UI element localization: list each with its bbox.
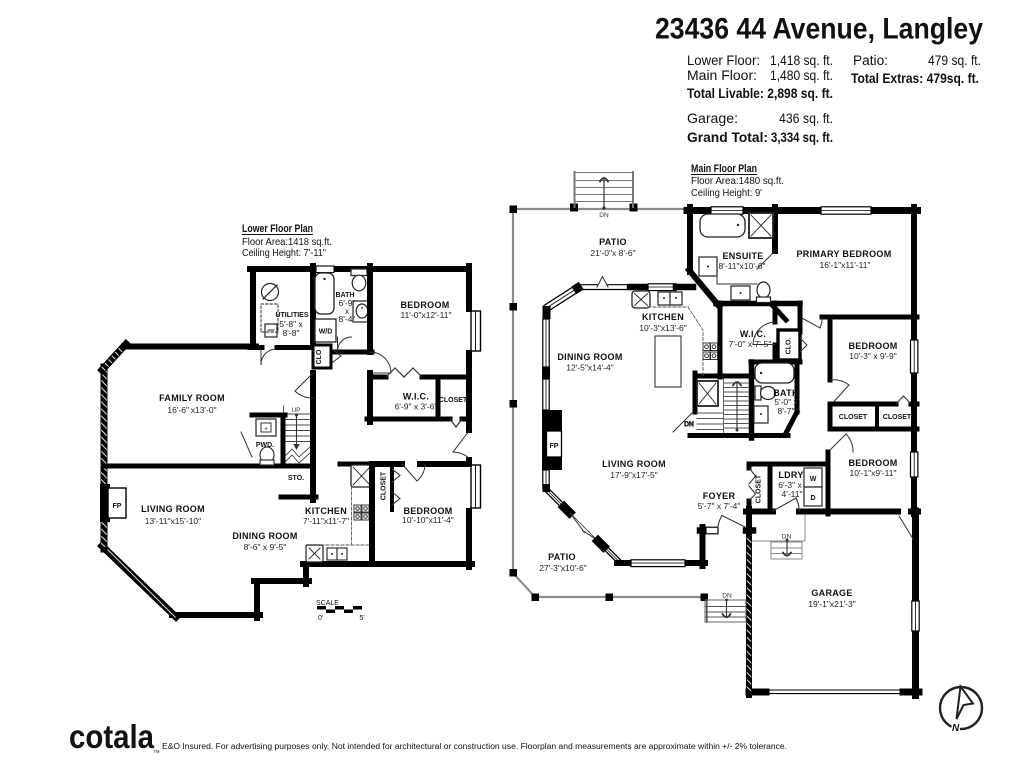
svg-text:Ceiling Height: 9': Ceiling Height: 9': [691, 188, 762, 199]
svg-text:BEDROOM: BEDROOM: [848, 458, 897, 468]
svg-text:13'-11"x15'-10": 13'-11"x15'-10": [145, 516, 201, 526]
svg-text:27'-3"x10'-6": 27'-3"x10'-6": [539, 563, 587, 573]
svg-text:5': 5': [359, 615, 364, 622]
svg-text:BEDROOM: BEDROOM: [400, 300, 449, 310]
svg-text:TM: TM: [154, 749, 161, 754]
svg-text:DN: DN: [599, 212, 609, 219]
svg-text:16'-6" x13'-0": 16'-6" x13'-0": [167, 405, 216, 415]
svg-text:Patio:: Patio:: [853, 52, 888, 68]
svg-text:Ceiling Height: 7'-11": Ceiling Height: 7'-11": [242, 248, 326, 259]
svg-text:5'-7" x 7'-4": 5'-7" x 7'-4": [698, 501, 741, 511]
svg-text:LDRY: LDRY: [778, 470, 803, 480]
svg-text:DN: DN: [722, 593, 732, 600]
svg-text:8'-8": 8'-8": [283, 328, 300, 338]
svg-text:17'-9"x17'-5": 17'-9"x17'-5": [610, 470, 658, 480]
svg-text:E&O Insured. For advertising p: E&O Insured. For advertising purposes on…: [162, 742, 787, 751]
svg-text:DINING ROOM: DINING ROOM: [232, 531, 297, 541]
svg-text:KITCHEN: KITCHEN: [642, 312, 684, 322]
svg-text:UP: UP: [291, 407, 300, 414]
svg-text:Lower Floor Plan: Lower Floor Plan: [242, 223, 313, 235]
svg-text:LIVING ROOM: LIVING ROOM: [602, 459, 666, 469]
svg-text:BEDROOM: BEDROOM: [848, 341, 897, 351]
svg-text:W.I.C.: W.I.C.: [740, 329, 766, 339]
svg-text:16'-1"x11'-11": 16'-1"x11'-11": [819, 260, 870, 270]
svg-text:Lower Floor:: Lower Floor:: [687, 52, 760, 68]
svg-text:3,334 sq. ft.: 3,334 sq. ft.: [771, 129, 833, 145]
svg-text:D: D: [810, 495, 815, 502]
svg-text:8'-11"x10'-6": 8'-11"x10'-6": [719, 261, 766, 271]
svg-text:12'-5"x14'-4": 12'-5"x14'-4": [566, 363, 614, 373]
svg-text:19'-1"x21'-3": 19'-1"x21'-3": [808, 599, 856, 609]
svg-text:CLOSET: CLOSET: [381, 471, 388, 500]
svg-text:cotala: cotala: [69, 718, 155, 755]
svg-text:479 sq. ft.: 479 sq. ft.: [928, 52, 981, 68]
svg-text:8'-6" x 9'-5": 8'-6" x 9'-5": [244, 542, 287, 552]
svg-text:Garage:: Garage:: [687, 110, 738, 126]
svg-text:CLOSET: CLOSET: [883, 414, 912, 421]
svg-text:PATIO: PATIO: [548, 552, 576, 562]
svg-text:10'-3" x 9'-9": 10'-3" x 9'-9": [849, 351, 897, 361]
svg-text:6'-9" x 3'-6": 6'-9" x 3'-6": [395, 402, 438, 412]
svg-text:Floor Area:1418 sq.ft.: Floor Area:1418 sq.ft.: [242, 237, 332, 248]
svg-text:7'-0" x 7'-5": 7'-0" x 7'-5": [729, 339, 772, 349]
svg-text:LIVING ROOM: LIVING ROOM: [141, 504, 205, 514]
svg-text:GARAGE: GARAGE: [811, 588, 852, 598]
svg-text:Main Floor:: Main Floor:: [687, 67, 757, 83]
svg-text:+: +: [264, 426, 268, 433]
svg-text:FAMILY ROOM: FAMILY ROOM: [159, 393, 225, 403]
svg-text:CLOSET: CLOSET: [439, 397, 468, 404]
svg-text:SCALE: SCALE: [316, 600, 339, 607]
svg-text:CLOSET: CLOSET: [839, 414, 868, 421]
svg-text:Total Livable: 2,898 sq. ft.: Total Livable: 2,898 sq. ft.: [687, 85, 833, 101]
svg-text:4'-11": 4'-11": [781, 489, 802, 499]
svg-text:ENSUITE: ENSUITE: [722, 251, 763, 261]
svg-text:1,418 sq. ft.: 1,418 sq. ft.: [770, 52, 833, 68]
svg-text:Floor Area:1480 sq.ft.: Floor Area:1480 sq.ft.: [691, 176, 784, 187]
svg-text:PRIMARY BEDROOM: PRIMARY BEDROOM: [796, 249, 891, 259]
svg-text:W.I.C.: W.I.C.: [403, 392, 429, 402]
svg-text:UTILITIES: UTILITIES: [275, 312, 308, 319]
svg-text:Main Floor Plan: Main Floor Plan: [691, 163, 757, 175]
svg-text:N: N: [952, 723, 960, 734]
svg-text:W/D: W/D: [319, 329, 333, 336]
svg-text:CLO: CLO: [316, 349, 323, 364]
svg-text:0': 0': [318, 615, 323, 622]
svg-text:CLOSET: CLOSET: [756, 474, 763, 503]
svg-text:KITCHEN: KITCHEN: [305, 506, 347, 516]
svg-text:436 sq. ft.: 436 sq. ft.: [779, 110, 833, 126]
svg-text:8'-4": 8'-4": [339, 314, 356, 324]
svg-text:10'-1"x9'-11": 10'-1"x9'-11": [850, 468, 897, 478]
svg-text:8'-7": 8'-7": [778, 406, 795, 416]
svg-text:FP: FP: [113, 503, 122, 510]
svg-text:21'-0"x 8'-6": 21'-0"x 8'-6": [590, 248, 635, 258]
svg-text:Total Extras: 479sq. ft.: Total Extras: 479sq. ft.: [851, 70, 979, 86]
svg-text:1,480 sq. ft.: 1,480 sq. ft.: [770, 67, 833, 83]
svg-text:DINING ROOM: DINING ROOM: [557, 352, 622, 362]
svg-text:CLO.: CLO.: [786, 338, 793, 355]
svg-text:STO.: STO.: [288, 475, 304, 482]
svg-text:23436 44 Avenue, Langley: 23436 44 Avenue, Langley: [655, 13, 983, 46]
svg-text:PWD.: PWD.: [256, 442, 274, 449]
svg-text:W: W: [810, 476, 817, 483]
svg-text:DN: DN: [684, 421, 694, 428]
svg-text:11'-0"x12'-11": 11'-0"x12'-11": [400, 310, 451, 320]
svg-text:FOYER: FOYER: [703, 491, 736, 501]
svg-text:10'-10"x11'-4": 10'-10"x11'-4": [402, 515, 454, 525]
svg-text:7'-11"x11'-7": 7'-11"x11'-7": [303, 516, 349, 526]
svg-text:Grand Total:: Grand Total:: [687, 129, 768, 145]
svg-text:FP: FP: [550, 443, 559, 450]
svg-text:DN: DN: [782, 534, 792, 541]
svg-text:PATIO: PATIO: [599, 237, 627, 247]
svg-text:10'-3"x13'-6": 10'-3"x13'-6": [639, 323, 687, 333]
